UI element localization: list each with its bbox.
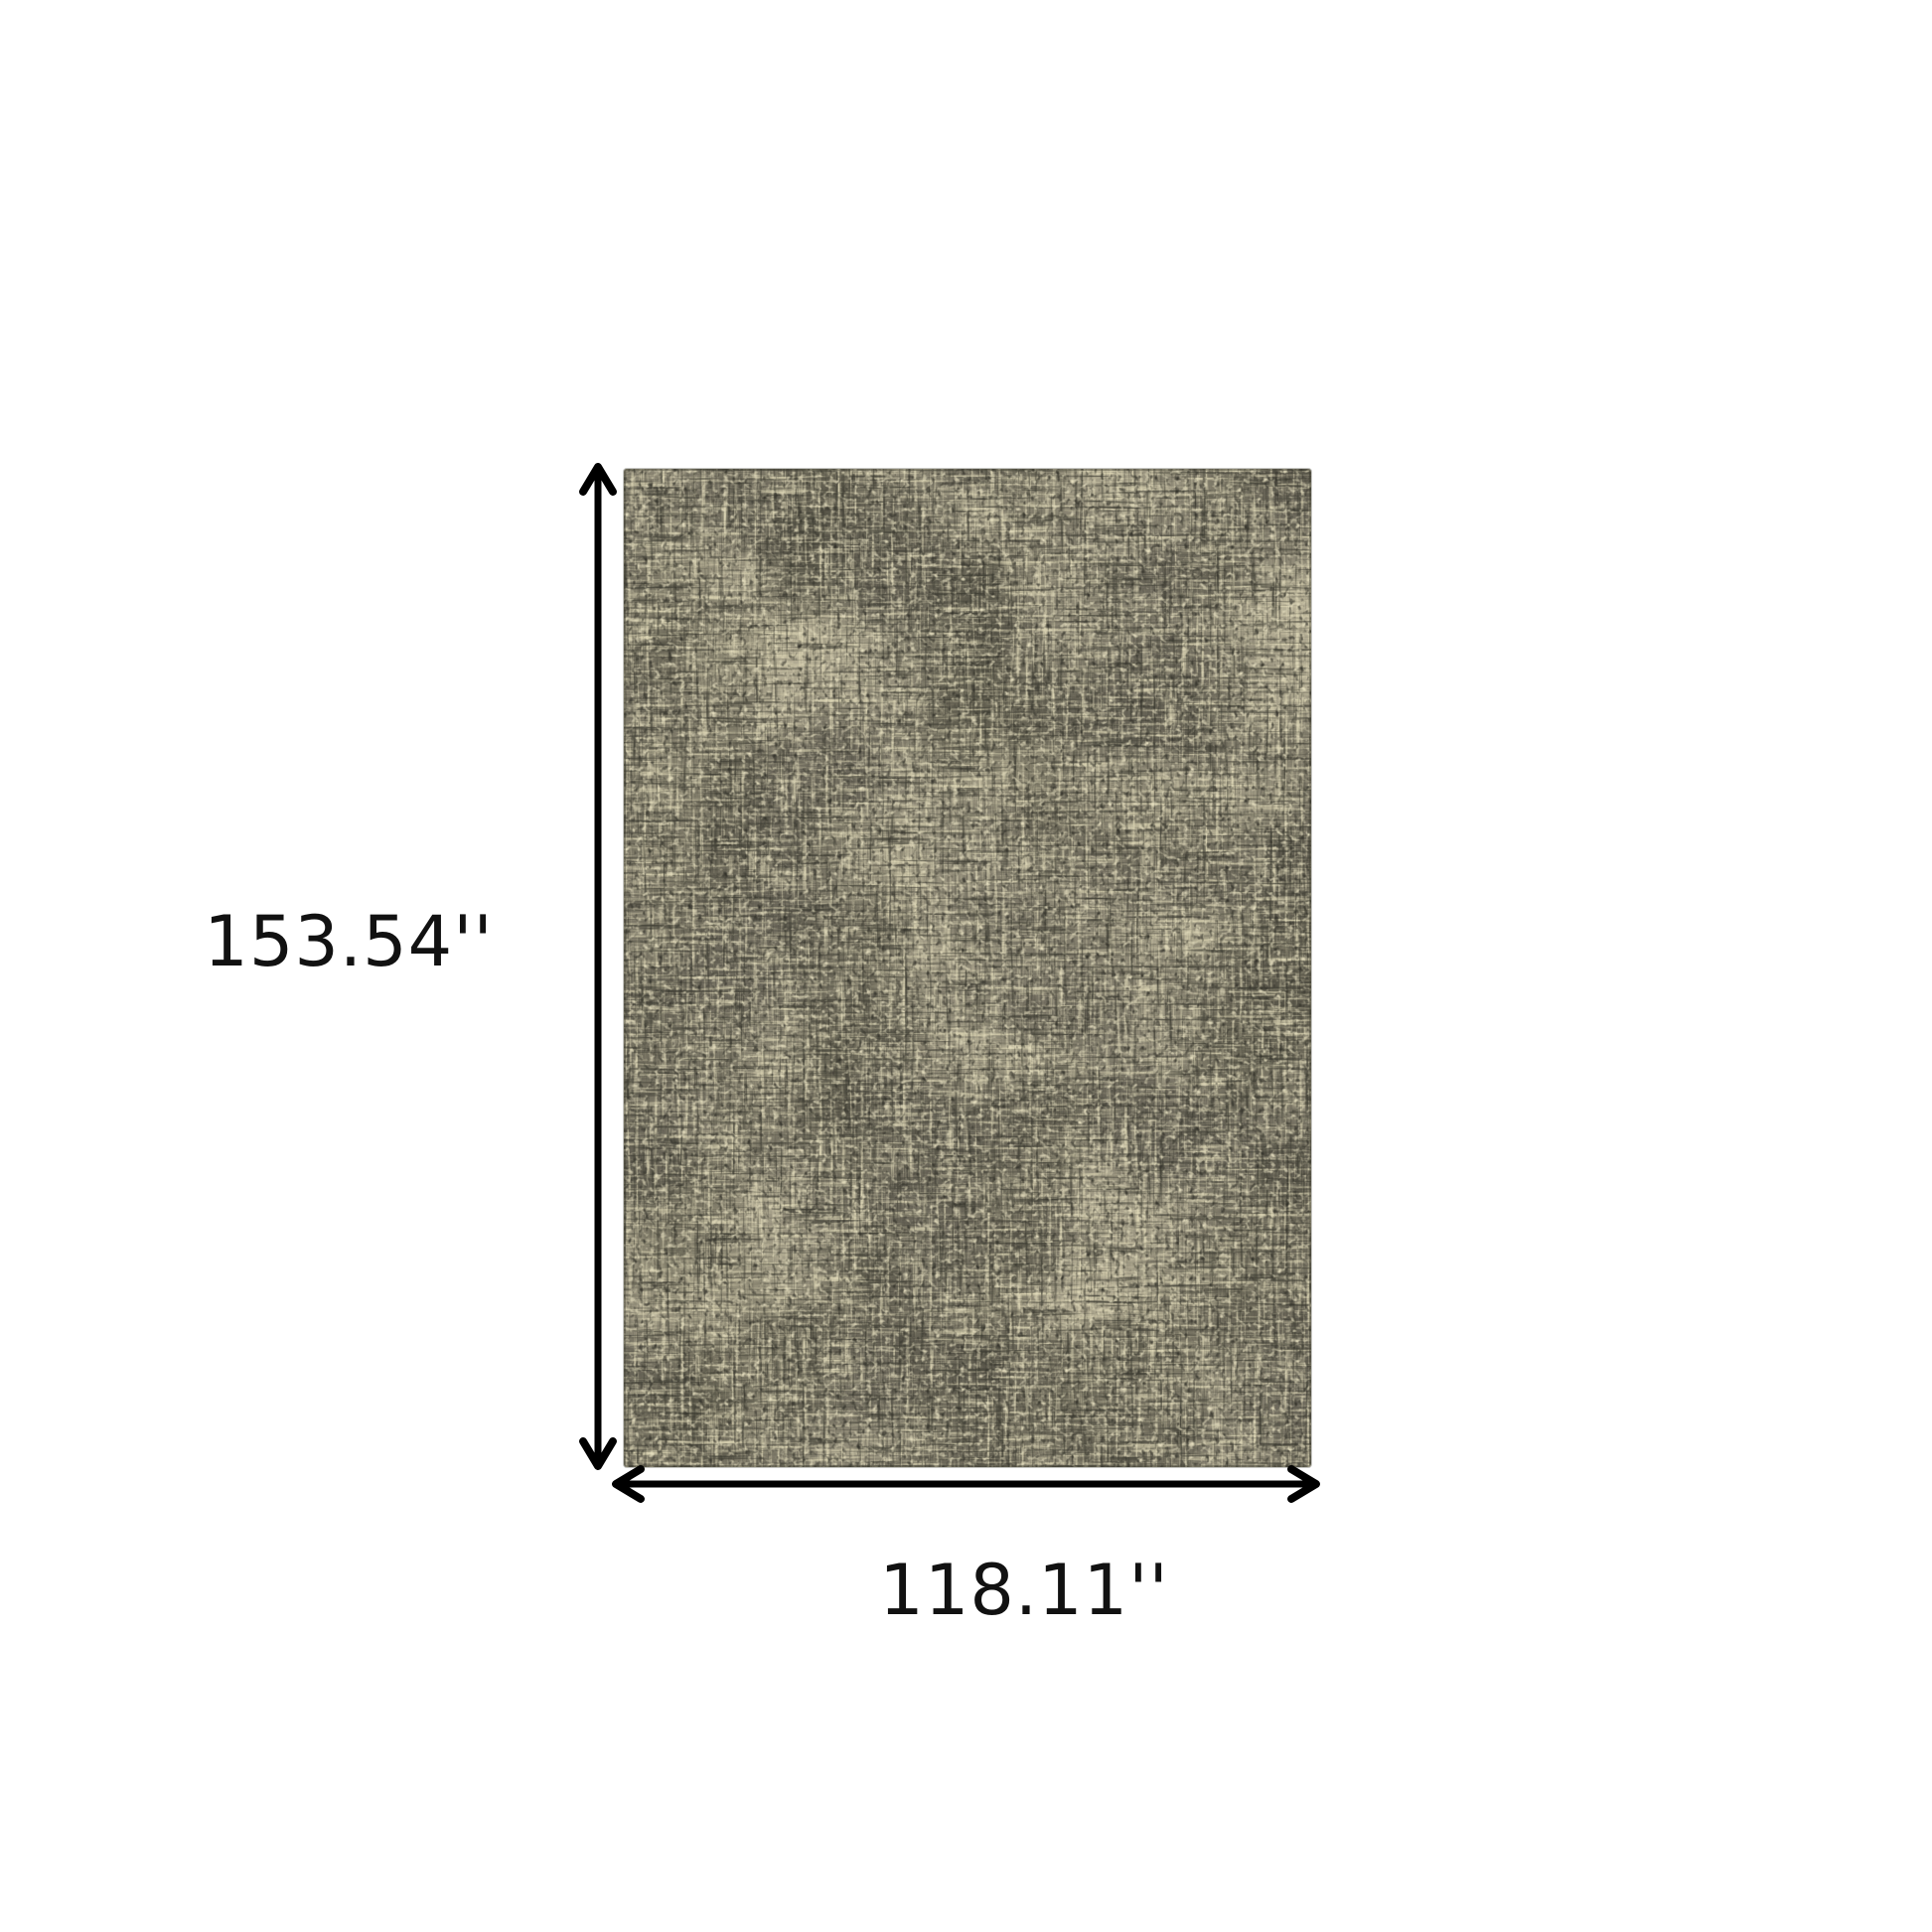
rug-product-image [624,469,1311,1467]
height-dimension-label: 153.54'' [110,897,587,986]
height-dimension-arrow [583,467,613,1466]
dimension-diagram: 153.54'' 118.11'' [0,0,1932,1932]
rug-texture [624,469,1311,1467]
width-dimension-label: 118.11'' [786,1546,1263,1635]
width-dimension-arrow [616,1469,1316,1499]
